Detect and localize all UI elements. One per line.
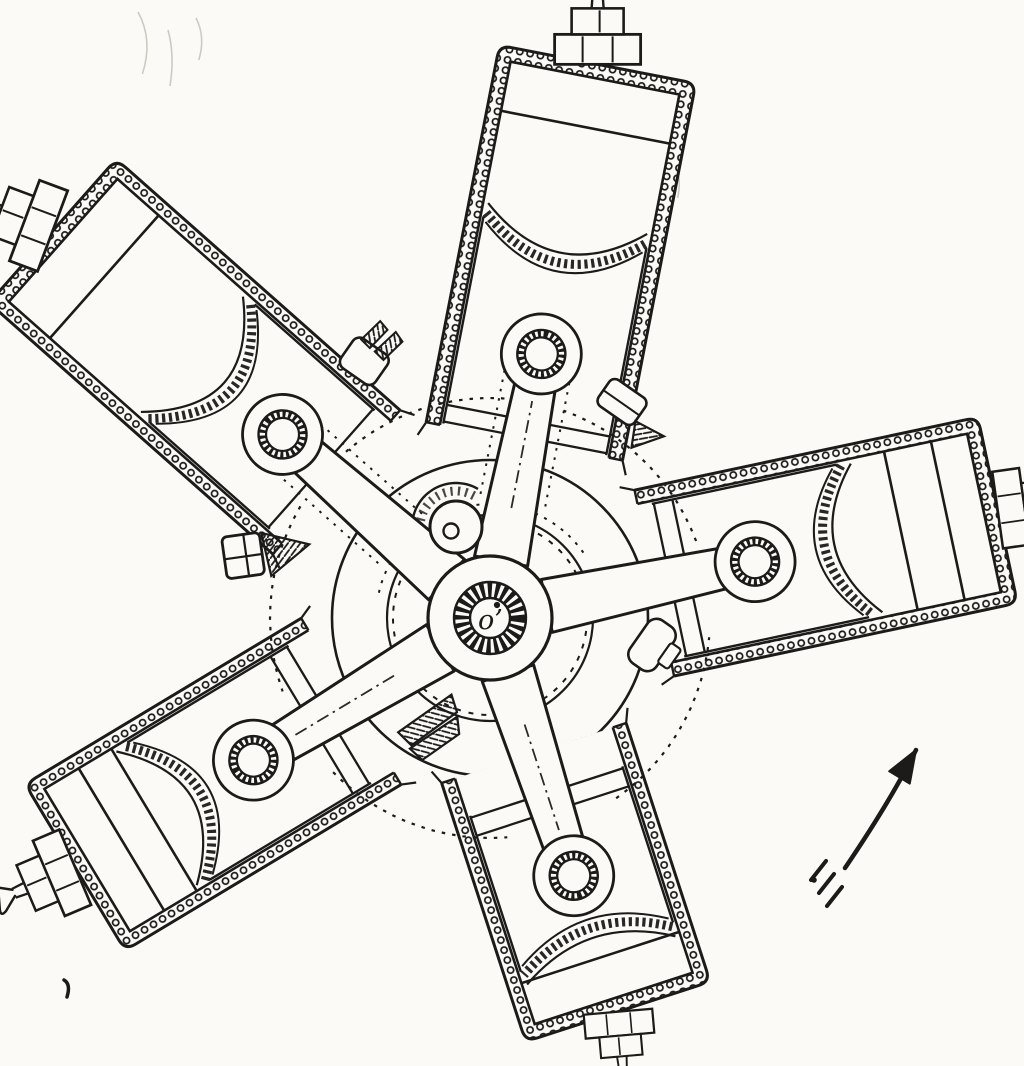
spark-plug-nut bbox=[599, 1034, 642, 1058]
scanned-diagram-page: o’ bbox=[0, 0, 1024, 1066]
arrow-fletching-dot bbox=[811, 877, 817, 883]
crankshaft-hub: o’ bbox=[428, 556, 552, 680]
spark-plug-nut bbox=[572, 8, 624, 34]
spark-plug-base bbox=[555, 34, 641, 64]
spark-plug-base bbox=[584, 1009, 655, 1039]
radial-engine-figure: o’ bbox=[0, 0, 1024, 1066]
hub-label: o’ bbox=[478, 605, 503, 636]
engine-diagram-svg: o’ bbox=[0, 0, 1024, 1066]
crank-pin-hole bbox=[444, 524, 459, 539]
